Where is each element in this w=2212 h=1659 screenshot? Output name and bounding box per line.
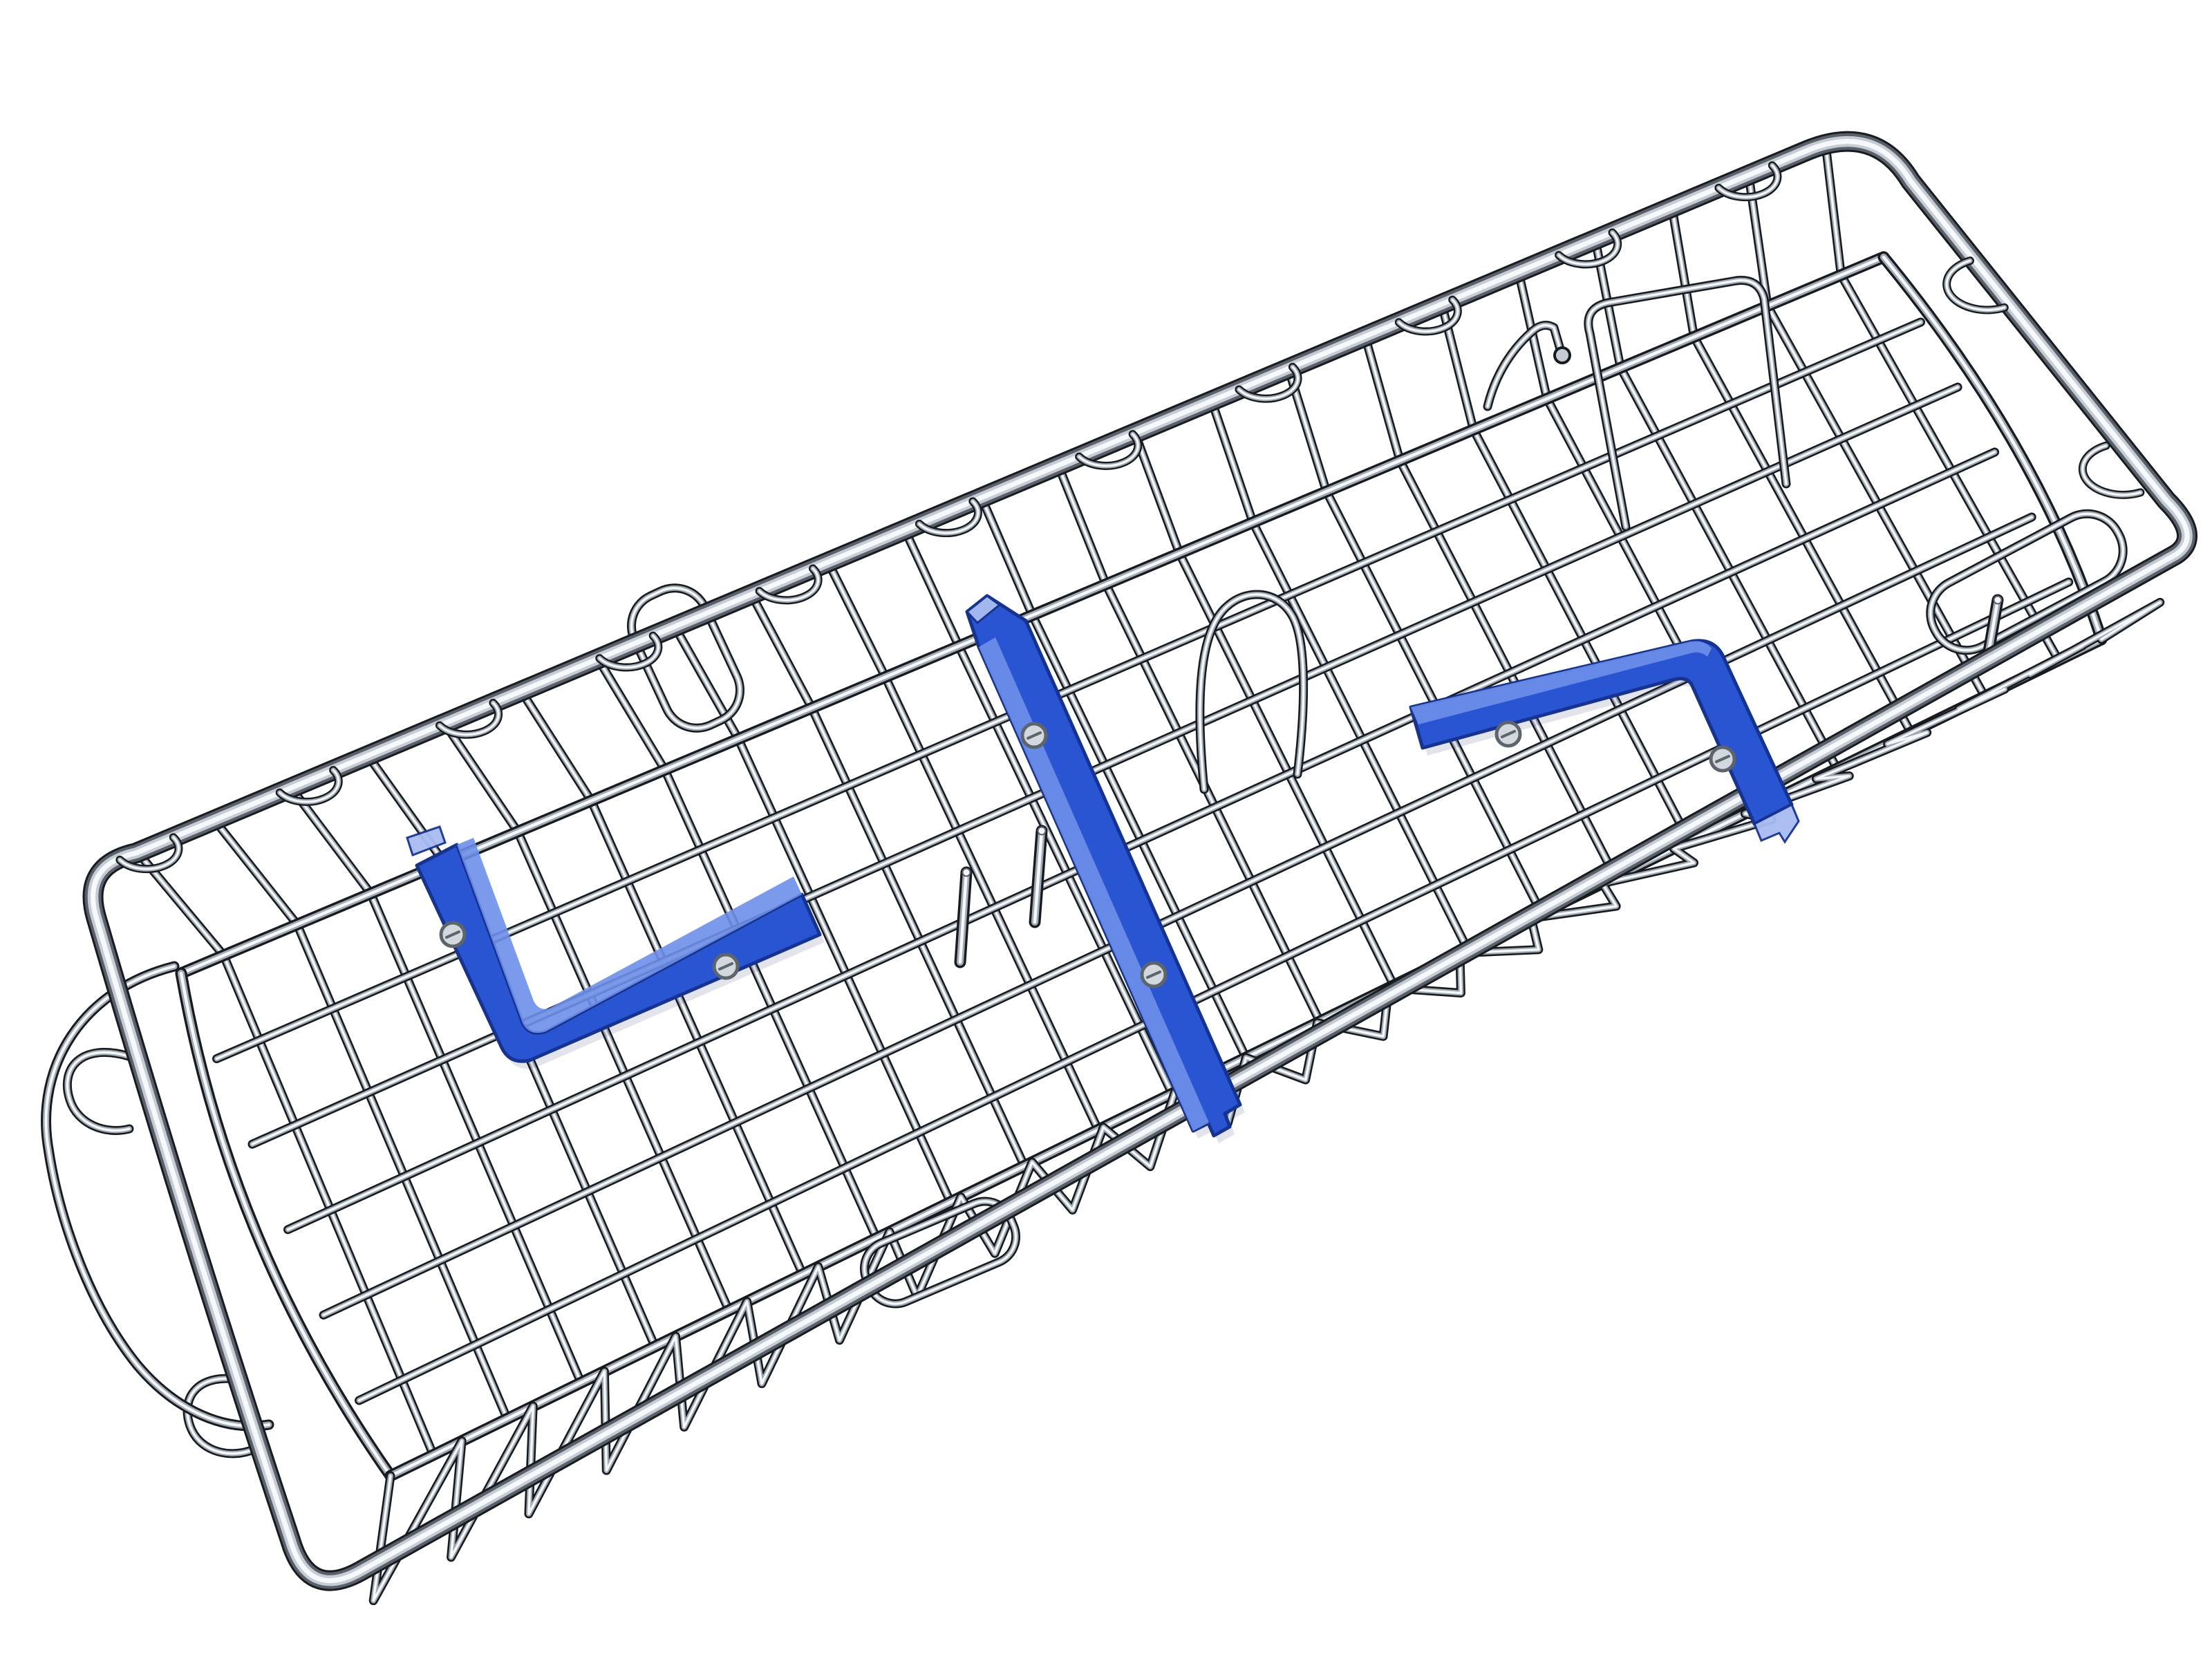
basket-rim <box>93 142 2188 1581</box>
bracket-screw <box>441 923 465 946</box>
basket-photo <box>0 0 2212 1659</box>
floor-long-wires <box>217 322 2069 1400</box>
bracket-bevel <box>979 637 1209 1131</box>
bracket-screw <box>1022 724 1046 747</box>
bracket-screw <box>1142 963 1165 986</box>
wire-hairpin-left-upper <box>67 1052 129 1130</box>
pin-cap <box>1994 597 2002 604</box>
pin-cap <box>963 869 971 877</box>
product-photo <box>0 0 2212 1659</box>
bracket-screw <box>1497 722 1520 746</box>
hook-pin-cap <box>1555 348 1570 363</box>
pin-cap <box>1038 827 1046 835</box>
bracket-screw <box>714 955 738 978</box>
bracket-screw <box>1711 747 1734 771</box>
